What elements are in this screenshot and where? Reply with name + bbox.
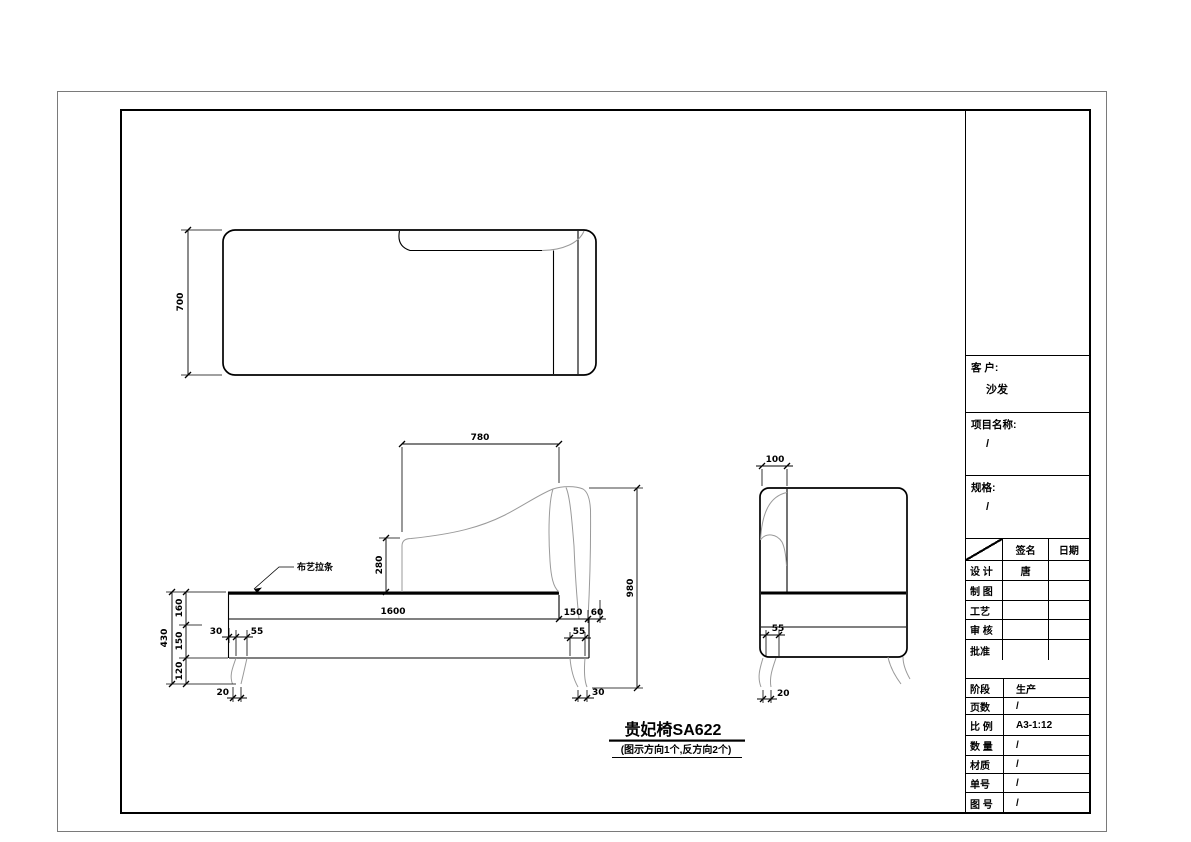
row-label: 设 计 <box>966 561 1002 580</box>
dim-side-leg-width: 55 <box>772 624 785 634</box>
row-value: / <box>1003 774 1089 792</box>
diagonal-cell <box>966 539 1002 560</box>
dim-back-rise: 280 <box>375 556 385 575</box>
date-column-header: 日期 <box>1048 539 1089 560</box>
row-label: 阶段 <box>966 679 1003 697</box>
dim-right-leg-tip: 30 <box>592 688 605 698</box>
row-label: 批准 <box>966 640 1002 660</box>
title-block: 客 户: 沙发 项目名称: / 规格: / 签名 日期 设 计 唐 制 图 工艺 <box>965 110 1090 813</box>
customer-label: 客 户: <box>966 356 1089 375</box>
spec-label: 规格: <box>966 476 1089 495</box>
row-label: 数 量 <box>966 736 1003 755</box>
project-box: 项目名称: / <box>966 413 1089 476</box>
row-value: / <box>1003 736 1089 755</box>
row-signature <box>1002 601 1047 619</box>
signature-header-row: 签名 日期 <box>966 539 1089 561</box>
table-row: 页数 / <box>966 698 1089 715</box>
dim-top-depth: 700 <box>176 293 186 312</box>
project-value: / <box>966 432 1089 450</box>
row-value: / <box>1003 793 1089 814</box>
side-view-drawing: 100 55 20 <box>756 455 910 703</box>
dim-back-depth: 150 <box>564 608 583 618</box>
row-value: / <box>1003 698 1089 714</box>
dim-rail-height: 150 <box>175 632 185 651</box>
table-row: 比 例 A3-1:12 <box>966 715 1089 736</box>
customer-value: 沙发 <box>966 375 1089 397</box>
row-label: 制 图 <box>966 581 1002 600</box>
table-row: 制 图 <box>966 581 1089 601</box>
sheet-inner-border <box>121 110 1090 813</box>
table-row: 工艺 <box>966 601 1089 620</box>
signature-table: 签名 日期 设 计 唐 制 图 工艺 审 核 批准 <box>966 539 1089 660</box>
dim-leg-height: 120 <box>175 662 185 681</box>
dim-seat-length: 1600 <box>380 607 405 617</box>
table-row: 批准 <box>966 640 1089 660</box>
signature-column-header: 签名 <box>1002 539 1047 560</box>
row-label: 单号 <box>966 774 1003 792</box>
dim-overall-height: 980 <box>626 579 636 598</box>
customer-box: 客 户: 沙发 <box>966 356 1089 413</box>
cad-drawing-page: 700 780 280 布艺拉条 <box>0 0 1191 842</box>
row-signature <box>1002 620 1047 639</box>
row-label: 审 核 <box>966 620 1002 639</box>
row-value: 生产 <box>1003 679 1089 697</box>
drawing-caption: 贵妃椅SA622 (图示方向1个,反方向2个) <box>609 720 745 758</box>
table-row: 图 号 / <box>966 793 1089 814</box>
row-label: 图 号 <box>966 793 1003 814</box>
dim-leg-inset: 30 <box>210 627 223 637</box>
dim-right-leg-width: 55 <box>573 627 586 637</box>
caption-note: (图示方向1个,反方向2个) <box>621 743 732 756</box>
row-label: 比 例 <box>966 715 1003 735</box>
dim-side-leg-tip: 20 <box>777 689 790 699</box>
table-row: 材质 / <box>966 756 1089 774</box>
info-table: 阶段 生产 页数 / 比 例 A3-1:12 数 量 / 材质 / 单号 / 图… <box>966 679 1089 814</box>
row-date <box>1048 581 1089 600</box>
caption-title: 贵妃椅SA622 <box>625 720 722 739</box>
table-row: 阶段 生产 <box>966 679 1089 698</box>
row-signature <box>1002 640 1047 660</box>
row-value: A3-1:12 <box>1003 715 1089 735</box>
dim-back-width: 780 <box>471 433 490 443</box>
table-row: 单号 / <box>966 774 1089 793</box>
row-label: 工艺 <box>966 601 1002 619</box>
row-date <box>1048 620 1089 639</box>
row-value: / <box>1003 756 1089 773</box>
dim-side-back-thickness: 100 <box>766 455 785 465</box>
title-block-spacer <box>966 660 1089 679</box>
row-date <box>1048 561 1089 580</box>
row-label: 页数 <box>966 698 1003 714</box>
dim-overall-height-left: 430 <box>160 629 170 648</box>
table-row: 数 量 / <box>966 736 1089 756</box>
table-row: 设 计 唐 <box>966 561 1089 581</box>
table-row: 审 核 <box>966 620 1089 640</box>
top-view-drawing: 700 <box>176 227 596 378</box>
dim-back-overhang: 60 <box>591 608 604 618</box>
row-label: 材质 <box>966 756 1003 773</box>
row-signature <box>1002 581 1047 600</box>
sheet-outer-border <box>58 92 1107 832</box>
project-label: 项目名称: <box>966 413 1089 432</box>
front-view-drawing: 780 280 布艺拉条 430 160 150 120 1600 30 55 <box>160 433 643 702</box>
row-date <box>1048 601 1089 619</box>
row-date <box>1048 640 1089 660</box>
spec-box: 规格: / <box>966 476 1089 539</box>
row-signature: 唐 <box>1002 561 1047 580</box>
dim-seat-band: 160 <box>175 599 185 618</box>
piping-label: 布艺拉条 <box>296 561 334 572</box>
dim-leg-tip: 20 <box>216 688 229 698</box>
dim-leg-width: 55 <box>251 627 264 637</box>
title-block-blank-box <box>966 111 1089 356</box>
spec-value: / <box>966 495 1089 513</box>
